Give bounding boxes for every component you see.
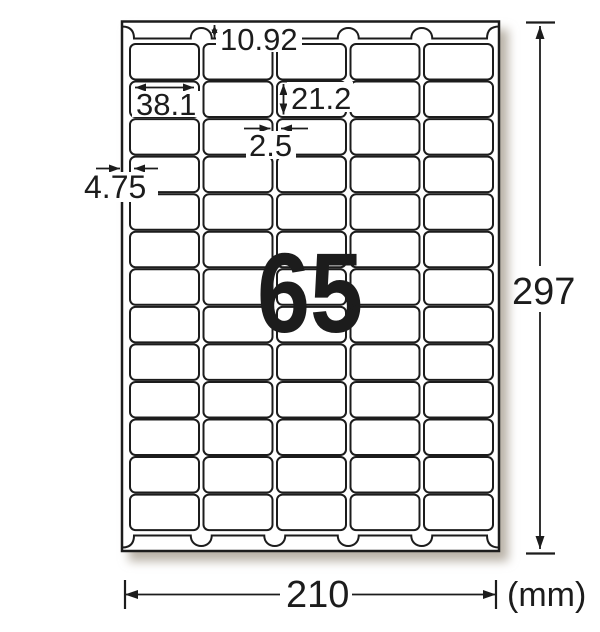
dim-top-margin: 10.92 bbox=[215, 22, 303, 57]
sheet-height-value: 297 bbox=[512, 271, 575, 313]
label-height-value: 21.2 bbox=[291, 81, 351, 116]
dim-label-height: 21.2 bbox=[284, 81, 354, 116]
dim-side-margin: 4.75 bbox=[82, 169, 158, 206]
top-margin-value: 10.92 bbox=[220, 22, 298, 57]
label-width-value: 38.1 bbox=[136, 87, 196, 122]
side-margin-value: 4.75 bbox=[84, 169, 146, 205]
column-gap-value: 2.5 bbox=[249, 128, 292, 163]
dim-sheet-height: 297 bbox=[512, 23, 575, 554]
diagram-svg: 65 10.92 38.1 21.2 bbox=[40, 16, 600, 616]
dim-sheet-width: 210 bbox=[125, 574, 496, 616]
label-sheet-diagram: 65 10.92 38.1 21.2 bbox=[40, 16, 600, 616]
unit-label: (mm) bbox=[507, 576, 586, 614]
dim-label-width: 38.1 bbox=[132, 87, 200, 122]
sheet-width-value: 210 bbox=[286, 574, 349, 616]
